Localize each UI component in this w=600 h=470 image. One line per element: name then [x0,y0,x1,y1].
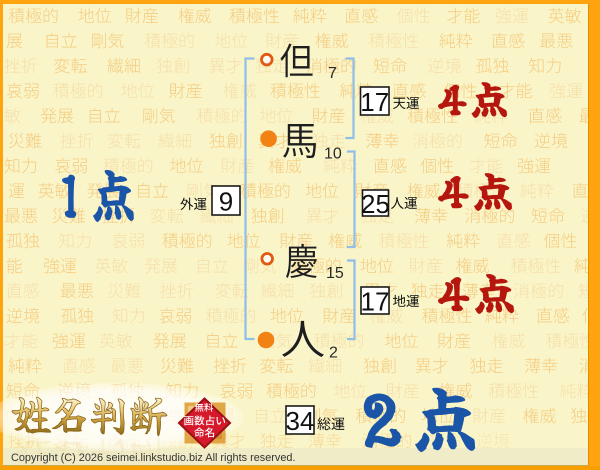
svg-text:10: 10 [324,146,342,163]
svg-text:17: 17 [360,87,389,117]
svg-text:25: 25 [361,189,390,219]
svg-text:15: 15 [326,265,344,282]
svg-text:7: 7 [328,65,337,82]
svg-text:Copyright (C) 2026 seimei.link: Copyright (C) 2026 seimei.linkstudio.biz… [11,452,296,464]
svg-text:34: 34 [286,406,315,436]
svg-text:2: 2 [329,345,338,362]
svg-text:9: 9 [219,187,233,217]
svg-text:17: 17 [361,287,390,317]
